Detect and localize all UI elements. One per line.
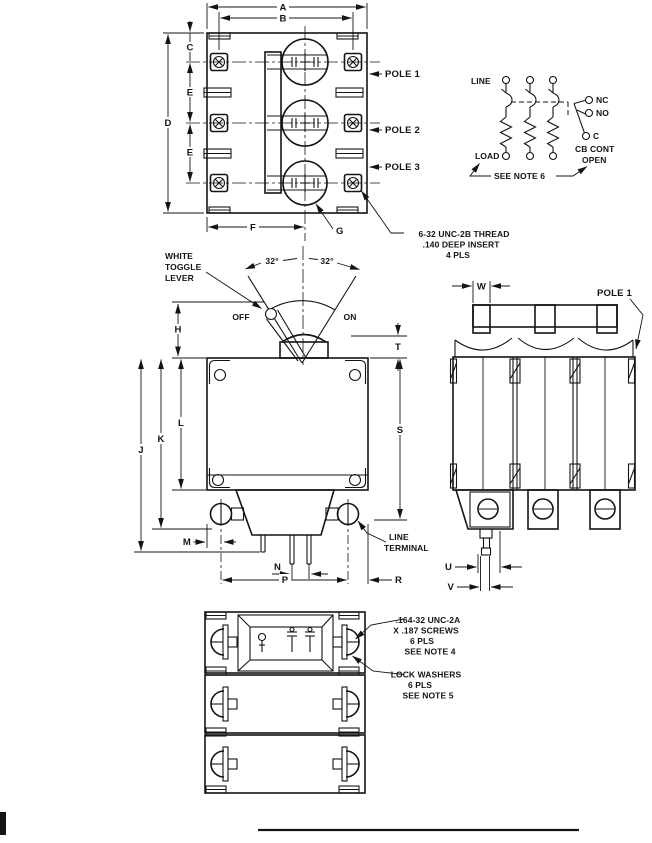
dim-label-r: R (395, 575, 402, 586)
screw-note-line-4: SEE NOTE 4 (404, 647, 455, 657)
angle-left-label: 32° (265, 256, 279, 266)
thread-note-line-1: 6-32 UNC-2B THREAD (418, 229, 509, 239)
dim-label-w: W (477, 282, 486, 293)
dim-label-e2: E (187, 148, 194, 159)
dim-label-n: N (274, 562, 281, 573)
thread-note-line-3: 4 PLS (446, 250, 470, 260)
dim-label-s: S (397, 425, 404, 436)
page-edge-mark (0, 812, 6, 835)
cb-cont-label-line-1: CB CONT (575, 144, 615, 154)
dim-label-a: A (279, 3, 286, 14)
see-note-6-label: SEE NOTE 6 (494, 171, 545, 181)
pole-3-callout: POLE 3 (385, 162, 420, 173)
dim-label-v: V (447, 582, 454, 593)
off-label: OFF (232, 312, 249, 322)
screw-note-line-1: .164-32 UNC-2A (396, 615, 461, 625)
screw-note-line-2: X .187 SCREWS (393, 626, 459, 636)
pole-2-callout: POLE 2 (385, 125, 420, 136)
cb-cont-label-line-2: OPEN (582, 155, 607, 165)
washer-note-line-3: SEE NOTE 5 (402, 691, 453, 701)
dim-label-k: K (157, 434, 164, 445)
drawing-page: A B D C E E (0, 0, 652, 843)
dim-label-g: G (336, 226, 344, 237)
dim-label-b: B (279, 14, 286, 25)
schematic: LINE LOAD NC NO (470, 76, 615, 181)
dim-label-j: J (138, 445, 143, 456)
schematic-no-label: NO (596, 108, 609, 118)
screw-note-line-3: 6 PLS (410, 636, 434, 646)
dim-label-e1: E (187, 88, 194, 99)
washer-note-line-1: LOCK WASHERS (391, 670, 462, 680)
terminal-screws (211, 625, 359, 781)
line-terminal-label-line-2: TERMINAL (384, 543, 429, 553)
dim-label-c: C (186, 43, 193, 54)
toggle-note-line-1: WHITE (165, 251, 193, 261)
dim-label-f: F (250, 223, 256, 234)
toggle-note-line-2: TOGGLE (165, 262, 202, 272)
top-view: A B D C E E (162, 2, 510, 260)
dim-label-u: U (445, 562, 452, 573)
schematic-c-label: C (593, 131, 599, 141)
load-terminal (211, 504, 244, 525)
line-terminal (326, 504, 359, 525)
page-marks (0, 812, 579, 835)
on-label: ON (344, 312, 357, 322)
front-view: 32° 32° OFF ON WHITE TOGGLE LEVER H T S … (134, 246, 429, 586)
line-terminal-label-line-1: LINE (389, 532, 409, 542)
angle-right-label: 32° (320, 256, 334, 266)
pole-1-callout: POLE 1 (385, 69, 421, 80)
terminal-lugs (456, 490, 620, 555)
schematic-line-label: LINE (471, 76, 491, 86)
toggle-note-line-3: LEVER (165, 273, 194, 283)
technical-drawing: A B D C E E (0, 0, 652, 843)
side-view: W POLE 1 U V (445, 281, 643, 593)
side-pole-1-callout: POLE 1 (597, 288, 633, 299)
dim-label-d: D (164, 118, 171, 129)
dim-label-m: M (183, 537, 191, 548)
dim-label-p: P (282, 575, 289, 586)
schematic-nc-label: NC (596, 95, 608, 105)
thread-note-line-2: .140 DEEP INSERT (422, 240, 500, 250)
washer-note-line-2: 6 PLS (408, 680, 432, 690)
aux-switch (574, 97, 593, 140)
dim-label-l: L (178, 418, 184, 429)
bottom-view: .164-32 UNC-2A X .187 SCREWS 6 PLS SEE N… (205, 612, 462, 793)
schematic-load-label: LOAD (475, 151, 499, 161)
dim-label-h: H (174, 325, 181, 336)
dim-label-t: T (395, 342, 401, 353)
